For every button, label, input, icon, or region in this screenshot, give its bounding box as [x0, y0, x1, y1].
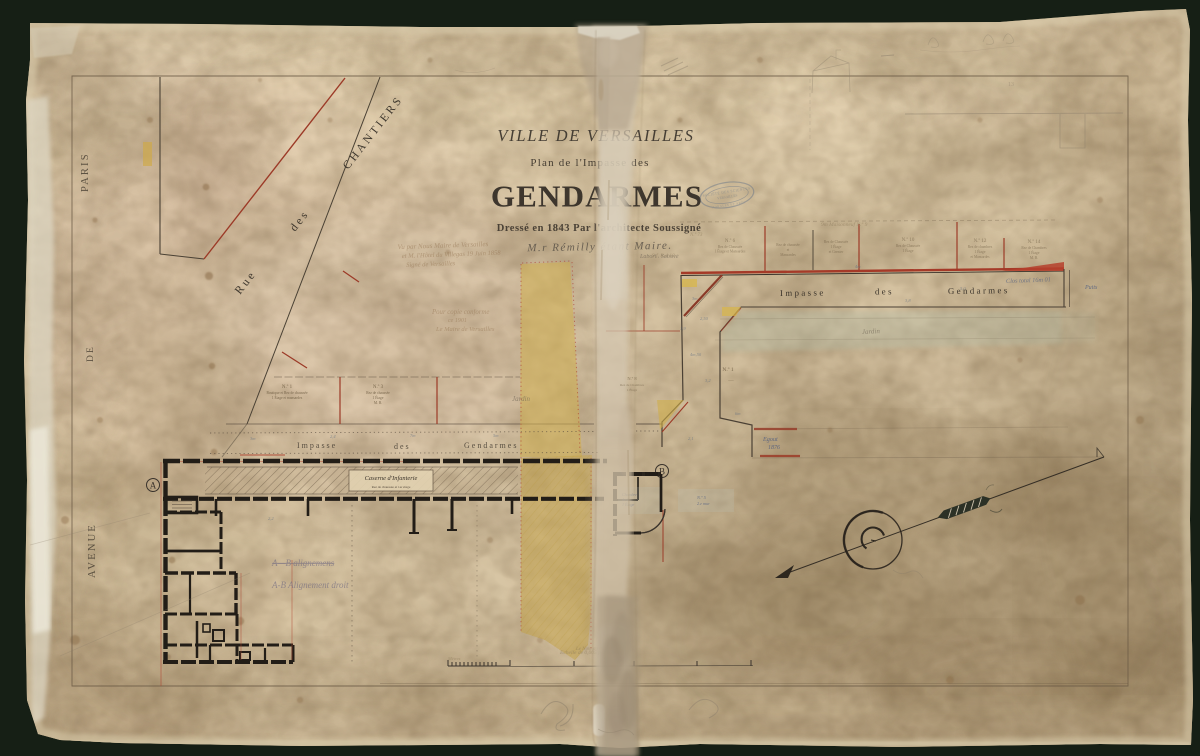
- svg-text:VILLE DE VERSAILLES: VILLE DE VERSAILLES: [497, 126, 694, 145]
- svg-text:1 Étage: 1 Étage: [1029, 250, 1040, 255]
- svg-text:N.º 1: N.º 1: [282, 384, 293, 390]
- svg-text:A-B Alignement droit: A-B Alignement droit: [271, 580, 349, 590]
- svg-text:ce 1901: ce 1901: [448, 318, 467, 324]
- svg-text:AVENUE: AVENUE: [87, 523, 98, 578]
- svg-text:M. B.: M. B.: [1030, 256, 1038, 260]
- svg-text:N.º 73: N.º 73: [689, 232, 703, 238]
- svg-text:DE: DE: [86, 345, 96, 362]
- svg-text:Le Maire de Versailles: Le Maire de Versailles: [435, 326, 495, 333]
- svg-text:1 Étage: 1 Étage: [903, 248, 914, 253]
- svg-text:N.º 3: N.º 3: [373, 384, 384, 390]
- svg-text:1 Étage et mansardes: 1 Étage et mansardes: [272, 395, 303, 400]
- svg-text:1 Étage: 1 Étage: [373, 395, 384, 400]
- svg-text:Pour copie conforme: Pour copie conforme: [431, 309, 489, 316]
- svg-text:2.e mur: 2.e mur: [697, 501, 710, 506]
- svg-text:4m: 4m: [855, 264, 861, 269]
- svg-text:Gendarmes: Gendarmes: [948, 285, 1010, 296]
- svg-text:1876: 1876: [768, 445, 780, 451]
- svg-text:N.º 10: N.º 10: [902, 237, 915, 243]
- svg-text:Rez de chambres: Rez de chambres: [968, 245, 993, 249]
- svg-text:M. B.: M. B.: [374, 401, 382, 405]
- svg-text:N.º 8: N.º 8: [627, 376, 637, 381]
- svg-text:1 Étage: 1 Étage: [975, 249, 986, 254]
- svg-text:Rez de Chaussée: Rez de Chaussée: [718, 245, 743, 249]
- svg-text:N.º 5: N.º 5: [696, 495, 707, 500]
- svg-text:Mètres: Mètres: [447, 656, 461, 661]
- svg-text:PARIS: PARIS: [80, 152, 91, 192]
- svg-text:Rez de chaussée et 1er étage: Rez de chaussée et 1er étage: [372, 485, 411, 489]
- svg-text:___: ___: [727, 377, 734, 381]
- svg-text:Mansardes: Mansardes: [780, 253, 796, 257]
- svg-text:Caserne d'Infanterie: Caserne d'Infanterie: [365, 475, 418, 482]
- svg-text:3m: 3m: [250, 436, 256, 441]
- svg-text:13: 13: [1008, 82, 1014, 88]
- svg-text:Gendarmes: Gendarmes: [464, 441, 518, 450]
- svg-text:Rez de chaussée: Rez de chaussée: [366, 391, 390, 395]
- svg-text:Puits: Puits: [1084, 285, 1098, 291]
- svg-text:Rez de Chambres: Rez de Chambres: [620, 383, 645, 387]
- svg-text:Rez de Chaussée: Rez de Chaussée: [896, 244, 921, 248]
- svg-text:5m: 5m: [493, 433, 499, 438]
- svg-text:1 Étage: 1 Étage: [831, 244, 842, 249]
- svg-text:3m: 3m: [692, 296, 698, 301]
- svg-text:Rez de Chaussée: Rez de Chaussée: [824, 240, 849, 244]
- svg-text:9 f. R.d 10: 9 f. R.d 10: [652, 252, 675, 259]
- svg-text:GENDARMES: GENDARMES: [491, 179, 703, 214]
- svg-text:A—B alignemens: A—B alignemens: [271, 558, 335, 568]
- svg-text:Boutique et Rez de chaussée: Boutique et Rez de chaussée: [266, 391, 308, 395]
- svg-text:Rez de chaussée: Rez de chaussée: [776, 243, 800, 247]
- svg-text:9m Maisonneuf N.º 9: 9m Maisonneuf N.º 9: [821, 221, 868, 228]
- svg-text:et Mansardes: et Mansardes: [970, 255, 990, 259]
- svg-text:A: A: [150, 481, 157, 491]
- svg-text:Rez de Chambres: Rez de Chambres: [1021, 246, 1047, 250]
- svg-text:des: des: [394, 442, 411, 451]
- svg-text:et Grenier: et Grenier: [829, 250, 844, 254]
- svg-text:Egout: Egout: [762, 436, 778, 443]
- svg-text:1 Étage et Mansardes: 1 Étage et Mansardes: [715, 249, 746, 254]
- svg-text:N.º 1: N.º 1: [722, 367, 733, 373]
- svg-text:Impasse: Impasse: [297, 441, 337, 450]
- svg-text:7m: 7m: [410, 433, 416, 438]
- svg-text:N.º 6: N.º 6: [725, 238, 736, 244]
- svg-text:et: et: [787, 248, 790, 252]
- svg-text:Impasse: Impasse: [780, 287, 826, 298]
- svg-text:des: des: [875, 286, 894, 296]
- svg-text:N.º 14: N.º 14: [1028, 239, 1041, 245]
- svg-text:1 Étage: 1 Étage: [627, 387, 638, 392]
- svg-text:Jardin: Jardin: [862, 327, 881, 336]
- svg-text:Jardin: Jardin: [512, 395, 531, 403]
- svg-text:6m: 6m: [735, 411, 741, 416]
- svg-text:N.º 12: N.º 12: [974, 238, 987, 244]
